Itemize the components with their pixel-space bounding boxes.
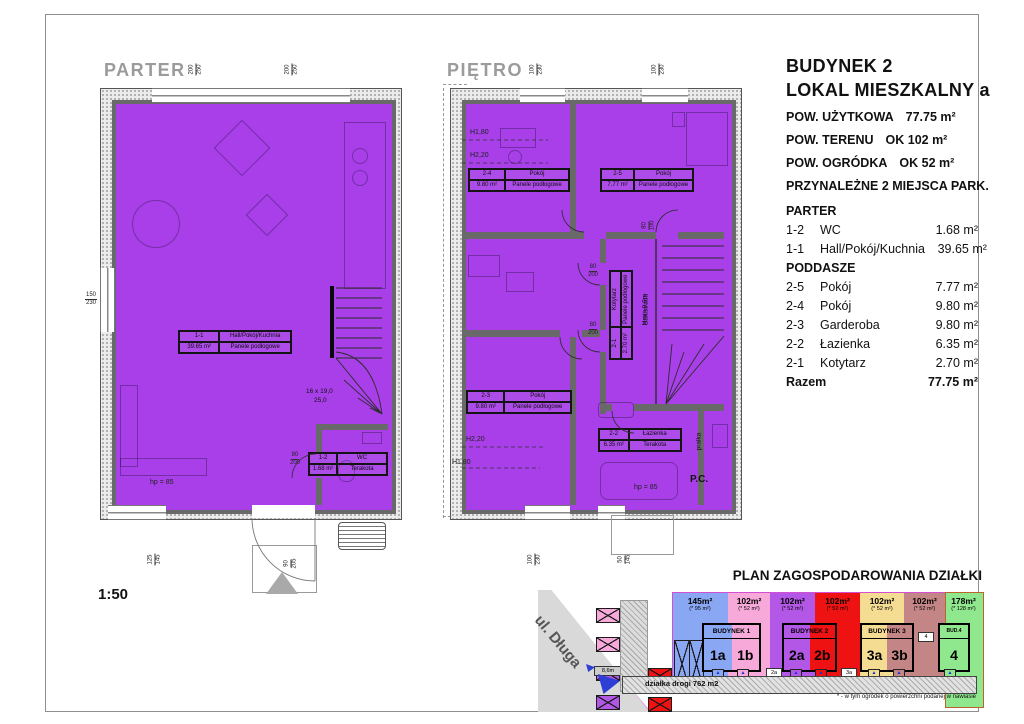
schedule-row: 2-5Pokój7.77 m²: [786, 278, 978, 297]
stat-parking: PRZYNALEŻNE 2 MIEJSCA PARK.: [786, 175, 996, 198]
plot-label-1b: 102m²(* 52 m²): [728, 596, 770, 613]
parking-space: [648, 697, 672, 712]
bath-sink: [598, 402, 634, 418]
drawing-sheet: PARTER 1-1Hall/Pokój/Kuchnia 39.65 m²Pan…: [0, 0, 1024, 724]
pralka-label: pralka: [696, 425, 703, 459]
pietro-roof-dash-left: [443, 88, 448, 518]
height-line-220-top: H2,20: [470, 152, 489, 159]
balustrade-height-label: Hmin.0,9m: [642, 278, 649, 342]
wall-h1-a: [466, 232, 584, 239]
plot-label-2b: 102m²(* 52 m²): [815, 596, 860, 613]
sofa-bottom: [120, 458, 207, 476]
parking-space: [596, 637, 620, 652]
bed-2-5: [686, 112, 728, 166]
dim-pietro-top-2: 100230: [652, 59, 667, 81]
site-plan-title: PLAN ZAGOSPODAROWANIA DZIAŁKI: [700, 568, 982, 583]
info-unit-title: LOKAL MIESZKALNY a: [786, 80, 990, 101]
dim-wc-door: 80200: [286, 452, 304, 467]
room-schedule: PARTER 1-2WC1.68 m² 1-1Hall/Pokój/Kuchni…: [786, 202, 978, 392]
wall-24-25: [570, 104, 576, 238]
unit-cell-3b: 3b: [887, 639, 912, 670]
dim-door-25: 80100: [642, 217, 657, 235]
building-box-3: BUDYNEK 3 3a 3b: [860, 623, 914, 672]
building-box-4: BUD.4 4: [938, 623, 970, 672]
plot-label-3a: 102m²(* 52 m²): [860, 596, 904, 613]
stat-garden-area: POW. OGRÓDKAOK 52 m²: [786, 152, 996, 175]
wardrobe-1: [468, 255, 500, 277]
schedule-section-parter: PARTER: [786, 202, 978, 221]
schedule-row: 2-2Łazienka6.35 m²: [786, 335, 978, 354]
corridor-wall-a: [600, 239, 606, 263]
parter-entry-door-opening: [252, 505, 315, 518]
doormat: [338, 522, 386, 550]
plot-label-2a: 102m²(* 52 m²): [770, 596, 815, 613]
room-label-1-2: 1-2WC 1.68 m²Terakota: [308, 452, 388, 476]
plot-label-4: 178m²(* 128 m²): [945, 596, 982, 613]
stat-usable-area: POW. UŻYTKOWA77.75 m²: [786, 106, 996, 129]
building-1-titlebar: BUDYNEK 1: [704, 625, 759, 639]
schedule-row: 1-1Hall/Pokój/Kuchnia39.65 m²: [786, 240, 978, 259]
room-label-2-3: 2-3Pokój 9.80 m²Panele podłogowe: [466, 390, 572, 414]
height-line-180-bottom: H1,80: [452, 459, 471, 466]
parter-hp-note: hp = 85: [150, 479, 174, 486]
parter-window-bottom: [108, 505, 166, 520]
wc-wall-left-upper: [316, 430, 322, 454]
info-stats: POW. UŻYTKOWA77.75 m² POW. TERENUOK 102 …: [786, 106, 996, 198]
parking-space: [596, 608, 620, 623]
building-box-2: BUDYNEK 2 2a 2b: [782, 623, 837, 672]
schedule-row: 2-4Pokój9.80 m²: [786, 297, 978, 316]
wall-h1-c: [678, 232, 724, 239]
schedule-section-poddasze: PODDASZE: [786, 259, 978, 278]
plot-label-3b: 102m²(* 52 m²): [904, 596, 945, 613]
dim-pietro-top-1: 100230: [530, 59, 545, 81]
unit-cell-2b: 2b: [810, 639, 836, 670]
parter-window-left: [100, 268, 115, 332]
info-building-title: BUDYNEK 2: [786, 56, 893, 77]
dim-parter-bottom-1: 125145: [148, 549, 163, 571]
height-line-220-bottom: H2,20: [466, 436, 485, 443]
desk-2-4: [500, 128, 536, 148]
wc-wall-top: [316, 424, 388, 430]
room-label-2-4: 2-4Pokój 9.80 m²Panele podłogowe: [468, 168, 570, 192]
kitchen-sink: [352, 148, 368, 164]
path-strip-4-label: 4: [918, 632, 934, 642]
sofa-left: [120, 385, 138, 467]
room-label-2-5: 2-5Pokój 7.77 m²Panele podłogowe: [600, 168, 694, 192]
wc-sink: [362, 432, 382, 444]
wc-wall-left-lower: [316, 478, 322, 505]
pc-label: P.C.: [690, 474, 708, 485]
plot-label-1a: 145m²(* 95 m²): [672, 596, 728, 613]
chair-2-4: [508, 150, 522, 164]
pietro-plan-title: PIĘTRO: [447, 60, 523, 81]
terrace-outline: [611, 515, 674, 555]
dim-door-24: 80200: [584, 264, 602, 279]
wardrobe-2: [506, 272, 534, 292]
building-3-titlebar: BUDYNEK 3: [862, 625, 912, 639]
site-footnote: * - w tym ogródek o powierzchni podanej …: [740, 694, 976, 700]
room-label-2-1: 2-1Kotytarz 2.70 m²Panele podłogowe: [609, 270, 633, 360]
schedule-row: 2-3Garderoba9.80 m²: [786, 316, 978, 335]
wall-23-top-a: [466, 330, 560, 337]
dim-parter-top-2: 200250: [285, 59, 300, 81]
schedule-row: 2-1Kotytarz2.70 m²: [786, 354, 978, 373]
kitchen-counter: [344, 122, 386, 289]
unit-cell-4: 4: [940, 639, 968, 670]
dim-door-23: 80200: [584, 322, 602, 337]
bathtub: [600, 462, 678, 500]
wall-23-right: [570, 337, 576, 505]
parking-space: [596, 695, 620, 710]
road-label: działka drogi 762 m2: [645, 679, 718, 688]
pietro-window-top-1: [520, 88, 565, 103]
washing-machine: [712, 424, 728, 448]
scale-label: 1:50: [98, 586, 128, 603]
building-box-1: BUDYNEK 1 1a 1b: [702, 623, 761, 672]
wall-bath-top-b: [634, 404, 724, 411]
building-4-titlebar: BUD.4: [940, 625, 968, 639]
unit-cell-2a: 2a: [784, 639, 810, 670]
nightstand-2-5: [672, 112, 685, 127]
room-label-1-1: 1-1Hall/Pokój/Kuchnia 39.65 m²Panele pod…: [178, 330, 292, 354]
pietro-hp-note: hp = 85: [634, 484, 658, 491]
unit-cell-1a: 1a: [704, 639, 732, 670]
dim-parter-top-1: 200250: [189, 59, 204, 81]
room-label-2-2: 2-2Łazienka 6.35 m²Terakota: [598, 428, 682, 452]
dim-parter-left: 150230: [80, 292, 102, 307]
parter-window-top: [152, 88, 350, 103]
stairs-note-line1: 16 x 19,0: [306, 388, 333, 395]
dim-pietro-bottom-1: 100230: [528, 549, 543, 571]
kitchen-hob: [352, 170, 368, 186]
schedule-total-row: Razem77.75 m²: [786, 373, 978, 392]
stairs-note-line2: 25,0: [314, 397, 327, 404]
round-table: [132, 200, 180, 248]
parter-plan-title: PARTER: [104, 60, 186, 81]
height-line-180-top: H1,80: [470, 129, 489, 136]
unit-cell-1b: 1b: [732, 639, 760, 670]
unit-cell-3a: 3a: [862, 639, 887, 670]
stat-plot-area: POW. TERENUOK 102 m²: [786, 129, 996, 152]
schedule-row: 1-2WC1.68 m²: [786, 221, 978, 240]
stair-railing: [330, 286, 334, 358]
building-2-titlebar: BUDYNEK 2: [784, 625, 835, 639]
pietro-window-top-2: [642, 88, 688, 103]
pietro-window-bottom-1: [525, 505, 570, 520]
